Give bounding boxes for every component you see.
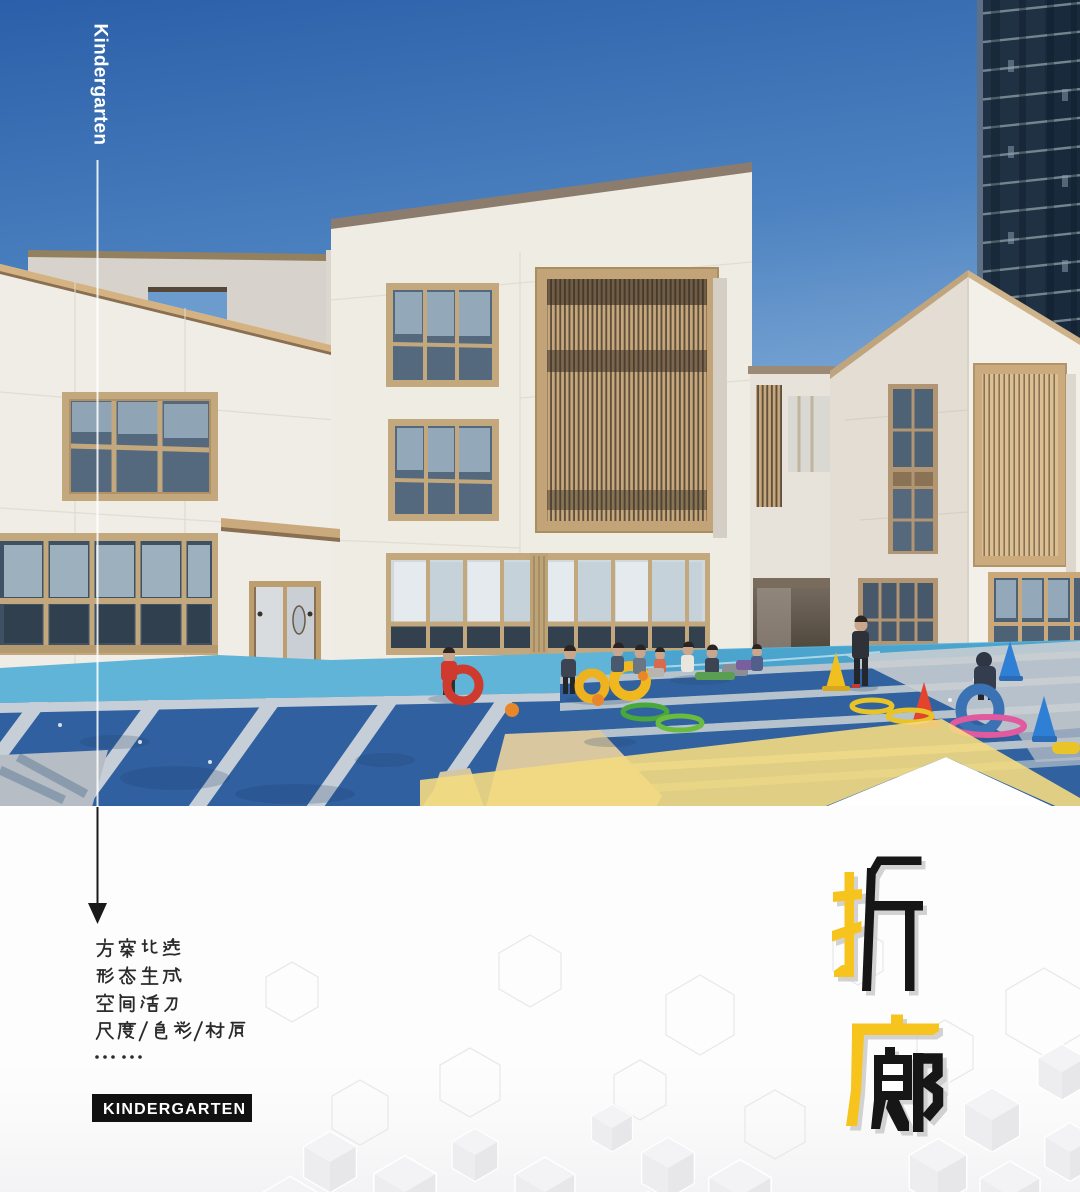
svg-text:Kindergarten: Kindergarten <box>90 24 111 146</box>
svg-text:KINDERGARTEN: KINDERGARTEN <box>103 1101 246 1118</box>
